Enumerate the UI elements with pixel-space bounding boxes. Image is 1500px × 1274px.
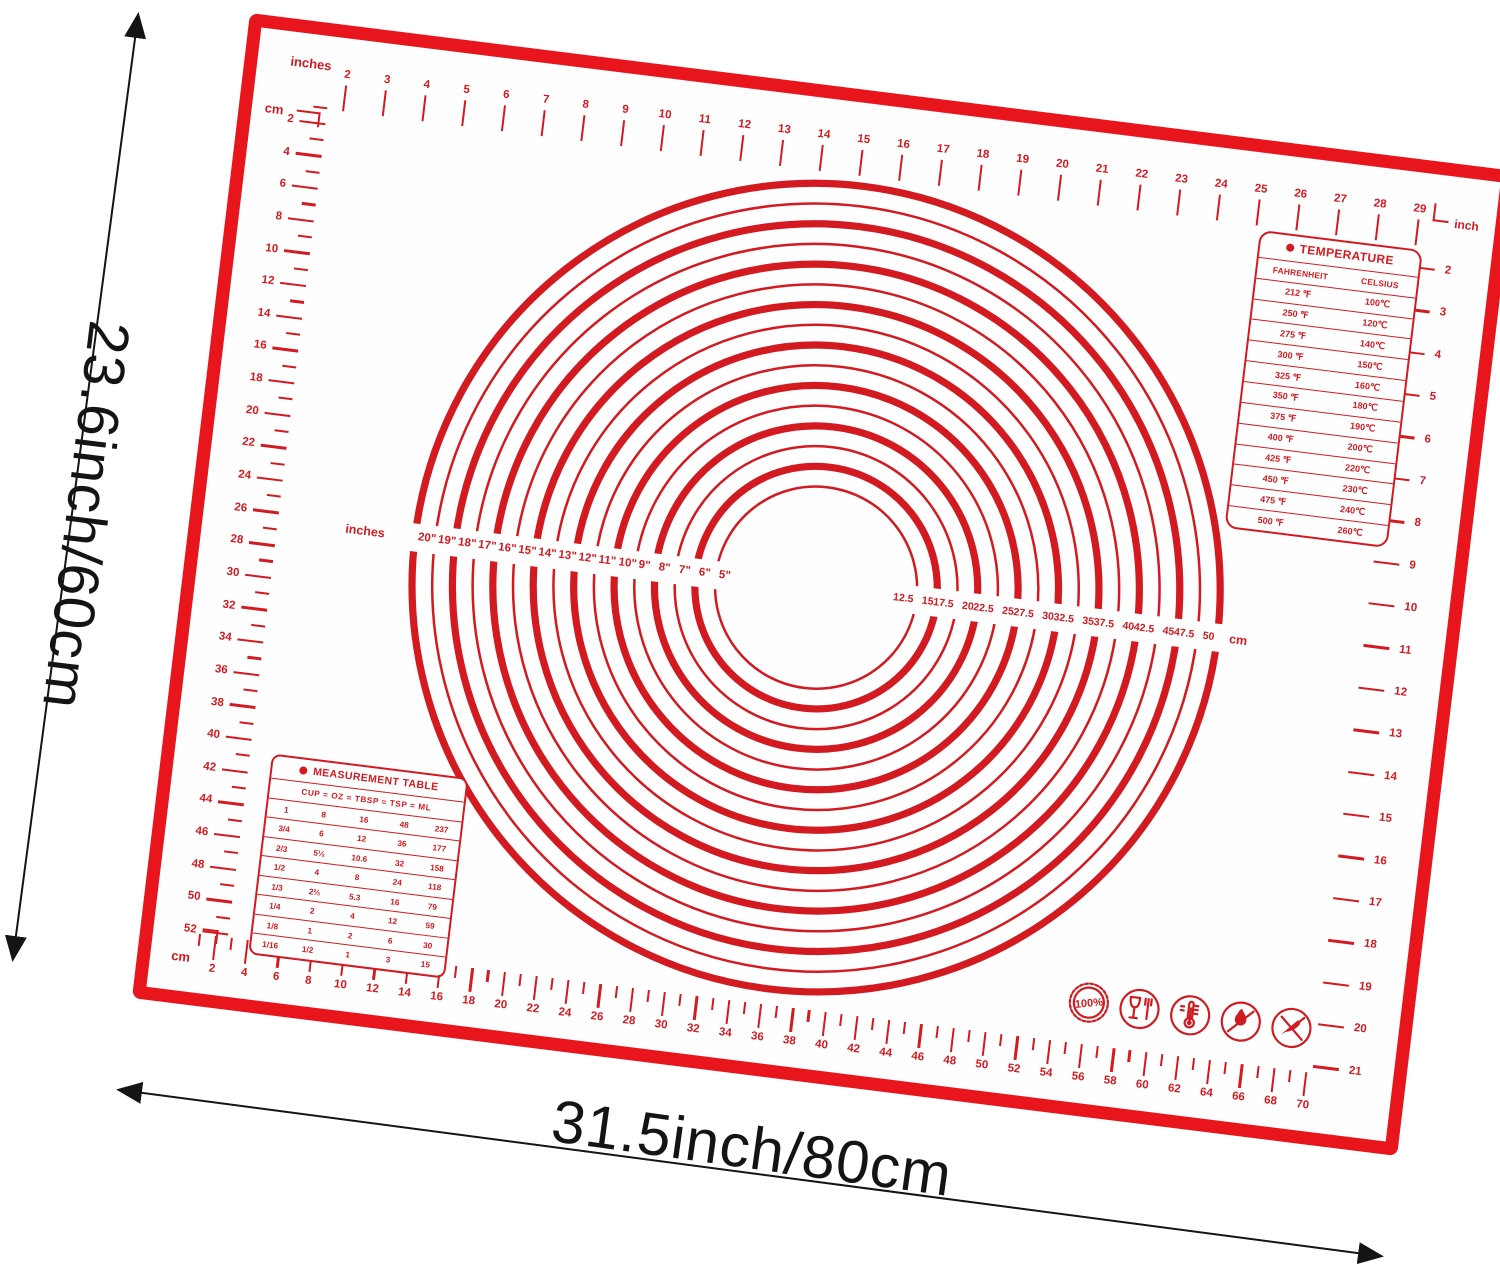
measurement-value: 1/4 <box>256 900 294 914</box>
circle-inch-label: 9" <box>638 560 651 573</box>
circle-cm-label: 50 <box>1202 631 1215 643</box>
measurement-value: 16 <box>342 812 386 826</box>
measurement-value: 8 <box>305 808 343 822</box>
rolling-circle-19in <box>389 159 1243 1016</box>
circle-cm-label: 42.5 <box>1133 622 1155 635</box>
measurement-value: 36 <box>383 837 421 851</box>
measurement-value: 12 <box>373 915 411 929</box>
circle-cm-axis-label: cm <box>1228 633 1247 648</box>
measurement-value: 5⅓ <box>300 846 338 860</box>
no-knife-icon <box>1267 1003 1316 1052</box>
measurement-value: 1/2 <box>260 861 298 875</box>
measurement-value: 5.3 <box>333 890 377 904</box>
rolling-circle-17in <box>434 204 1198 971</box>
measurement-value: 1/8 <box>253 919 291 933</box>
circle-inch-label: 18" <box>457 537 476 551</box>
measurement-value: 4 <box>330 909 374 923</box>
rolling-circle-16in <box>457 227 1176 949</box>
measurement-value: 1 <box>291 924 329 938</box>
measurement-value: 12 <box>340 832 384 846</box>
pastry-mat: inches cm 20"19"18"17"16"15"14"13"12"11"… <box>132 13 1500 1156</box>
measurement-value: 10.6 <box>337 851 381 865</box>
circle-cm-label: 47.5 <box>1173 627 1195 640</box>
measurement-value: 118 <box>415 881 453 895</box>
measurement-value: 24 <box>378 876 416 890</box>
measurement-value: 6 <box>371 934 409 948</box>
measurement-value: 237 <box>422 822 460 836</box>
circle-cm-label: 22.5 <box>973 602 995 615</box>
rolling-circle-8in <box>636 407 995 768</box>
measurement-value: 8 <box>335 870 379 884</box>
circle-cm-label: 37.5 <box>1093 617 1115 630</box>
circle-inch-label: 12" <box>578 552 597 566</box>
circle-inch-label: 8" <box>658 562 671 575</box>
measurement-table: MEASUREMENT TABLE CUP = OZ = TBSP = TSP … <box>248 754 469 979</box>
measurement-value: 59 <box>411 919 449 933</box>
measurement-value: 1 <box>326 948 370 962</box>
measurement-value: 79 <box>413 900 451 914</box>
measurement-value: 1/16 <box>251 939 289 953</box>
circle-inch-label: 11" <box>598 555 617 569</box>
circle-inch-label: 19" <box>437 535 456 549</box>
flame-warning-icon <box>1216 997 1265 1046</box>
measurement-value: 15 <box>406 958 444 972</box>
rolling-circle-12in <box>547 317 1086 859</box>
circle-inch-label: 7" <box>678 565 691 578</box>
100-percent-badge-icon: 100% <box>1064 978 1113 1027</box>
celsius-value: 260℃ <box>1313 521 1387 541</box>
circle-inch-label: 13" <box>558 550 577 564</box>
circle-inch-label: 14" <box>538 547 557 561</box>
measurement-value: 6 <box>302 827 340 841</box>
measurement-value: 2 <box>293 905 331 919</box>
circle-inch-label: 17" <box>477 540 496 554</box>
bullet-icon <box>1285 244 1294 253</box>
heat-resistant-icon <box>1166 991 1215 1040</box>
measurement-value: 16 <box>376 895 414 909</box>
measurement-value: 1/2 <box>288 943 326 957</box>
measurement-value: 4 <box>298 866 336 880</box>
circle-cm-label: 32.5 <box>1053 612 1075 625</box>
bullet-icon <box>299 766 308 775</box>
measurement-value: 3/4 <box>265 822 303 836</box>
height-dimension-label: 23.6inch/60cm <box>29 317 143 712</box>
circle-inch-label: 10" <box>618 557 637 571</box>
measurement-value: 48 <box>385 818 423 832</box>
measurement-value: 1 <box>267 803 305 817</box>
badge-text: 100% <box>1074 996 1103 1010</box>
circle-inch-label: 16" <box>497 542 516 556</box>
measurement-value: 1/3 <box>258 881 296 895</box>
circle-inch-label: 5" <box>718 570 731 583</box>
celsius-column-header: CELSIUS <box>1343 273 1417 292</box>
circle-cm-label: 27.5 <box>1013 607 1035 620</box>
food-safe-icon <box>1115 984 1164 1033</box>
measurement-value: 32 <box>380 856 418 870</box>
measurement-value: 30 <box>408 939 446 953</box>
circle-cm-label: 17.5 <box>933 597 955 610</box>
measurement-value: 177 <box>420 842 458 856</box>
measurement-value: 158 <box>418 861 456 875</box>
measurement-value: 2/3 <box>262 842 300 856</box>
circle-inch-label: 20" <box>417 532 436 546</box>
rolling-circle-20in <box>367 136 1265 1039</box>
width-dimension-label: 31.5inch/80cm <box>548 1086 957 1210</box>
concentric-circles <box>132 13 1500 1156</box>
measurement-value: 3 <box>369 953 407 967</box>
circle-inch-label: 15" <box>518 545 537 559</box>
measurement-value: 2⅔ <box>295 885 333 899</box>
circle-inch-label: 6" <box>698 567 711 580</box>
circle-cm-label: 12.5 <box>892 592 914 605</box>
measurement-value: 2 <box>328 929 372 943</box>
rolling-circle-15in <box>479 249 1153 926</box>
